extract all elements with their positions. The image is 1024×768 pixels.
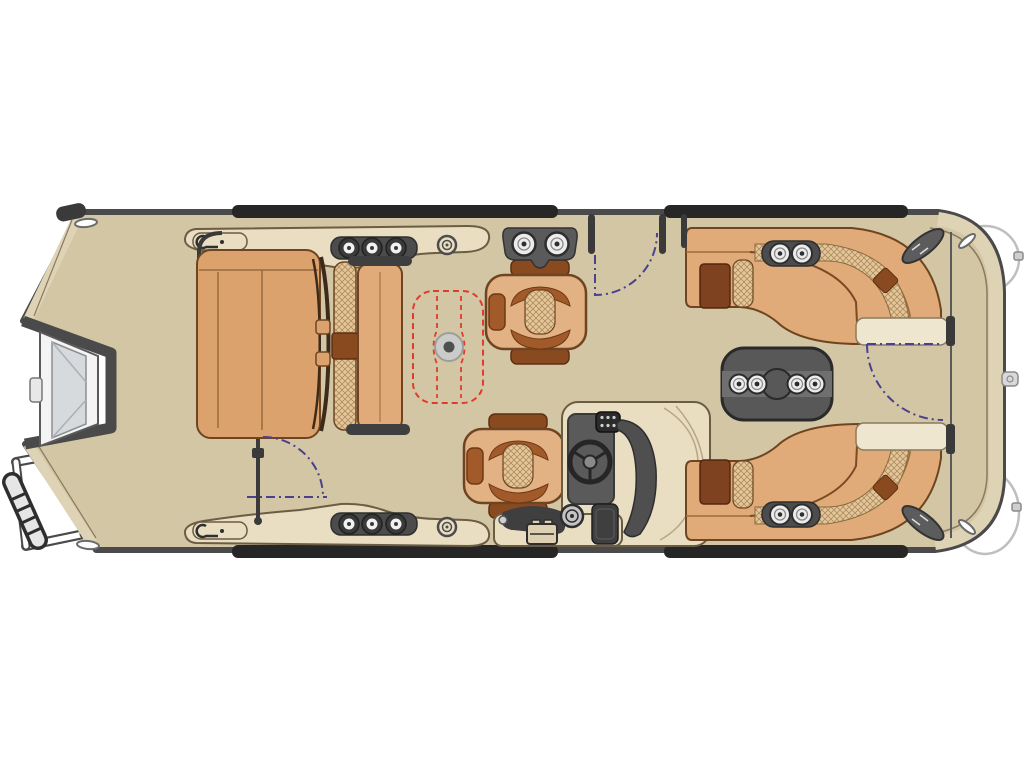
courtesy-light-icon xyxy=(438,236,456,254)
cupholder-icon xyxy=(788,375,807,394)
speaker-icon xyxy=(339,514,359,534)
keypad-icon xyxy=(596,412,620,432)
battery-box xyxy=(527,520,557,544)
cupholder-icon xyxy=(730,375,749,394)
speaker-icon xyxy=(339,238,359,258)
pontoon-floorplan: Pontoon boat floor plan — top-down view,… xyxy=(0,0,1024,768)
cupholder-icon xyxy=(546,233,569,256)
cleat-icon xyxy=(193,522,247,539)
speaker-icon xyxy=(386,238,406,258)
helm-equipment xyxy=(494,504,622,546)
helm-swivel-chair xyxy=(464,414,564,518)
aft-back-to-back-lounge xyxy=(197,250,412,438)
speaker-icon xyxy=(362,514,382,534)
lounge-accent-pad xyxy=(332,333,358,359)
speaker-icon xyxy=(386,514,406,534)
bow-table xyxy=(722,348,832,420)
bow-eye xyxy=(1002,372,1018,386)
cupholder-icon xyxy=(748,375,767,394)
ladder-roller xyxy=(12,482,41,540)
courtesy-light-icon xyxy=(438,518,456,536)
companion-swivel-chair xyxy=(486,260,586,364)
bow-gate-frame-bottom xyxy=(946,424,955,454)
cupholder-icon xyxy=(806,375,825,394)
floorplan-canvas: Pontoon boat floor plan — top-down view,… xyxy=(0,0,1024,768)
speaker-icon xyxy=(362,238,382,258)
table-pedestal-base xyxy=(435,333,463,361)
bow-gate-frame-top xyxy=(946,316,955,346)
deck-bolt xyxy=(499,516,507,524)
cupholder-icon xyxy=(513,233,536,256)
fuel-gauge-icon xyxy=(561,505,583,527)
